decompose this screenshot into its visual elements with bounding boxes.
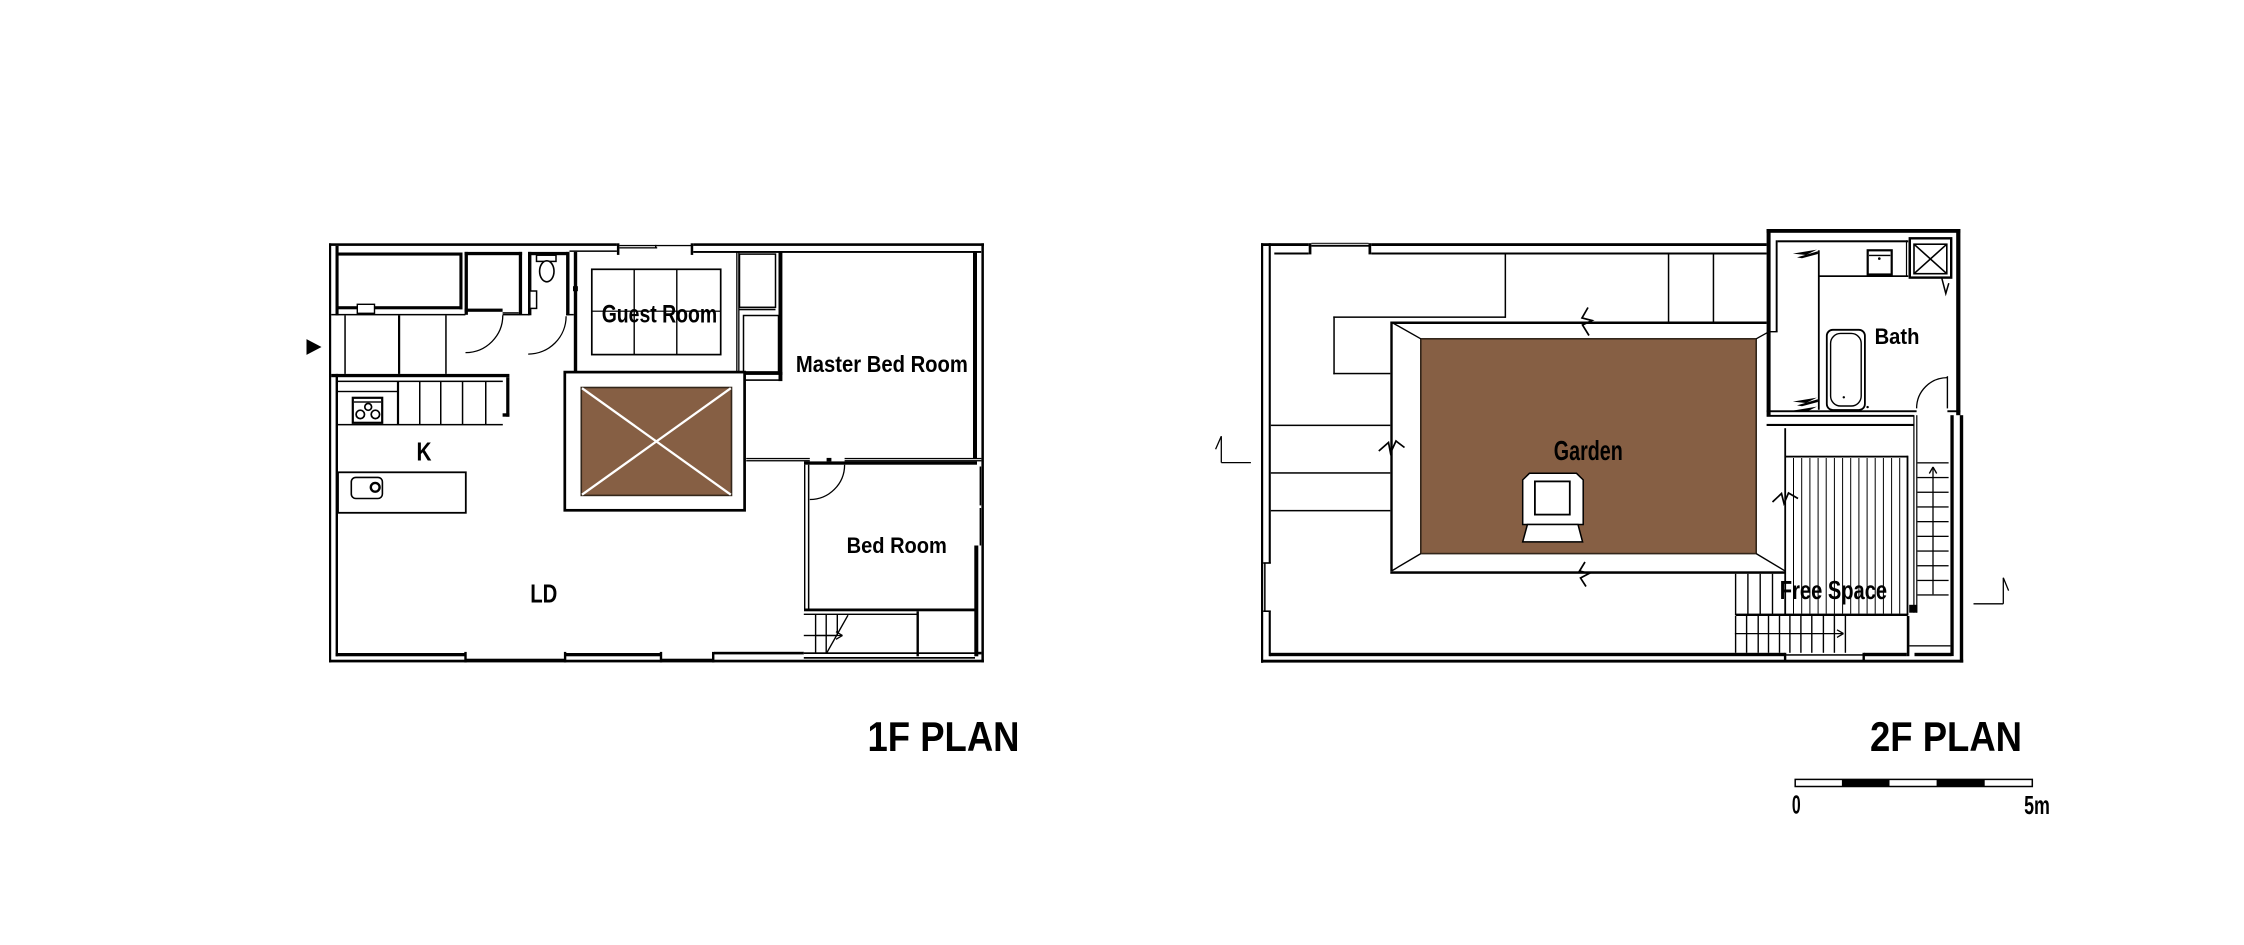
- svg-text:5m: 5m: [2024, 790, 2050, 820]
- svg-text:K: K: [417, 439, 432, 467]
- svg-text:LD: LD: [530, 579, 557, 609]
- svg-text:1F PLAN: 1F PLAN: [868, 713, 1020, 760]
- svg-text:Guest Room: Guest Room: [602, 300, 718, 328]
- svg-text:0: 0: [1792, 789, 1801, 819]
- svg-text:Garden: Garden: [1554, 435, 1623, 466]
- svg-text:Bath: Bath: [1875, 324, 1920, 349]
- svg-text:Master Bed Room: Master Bed Room: [796, 351, 968, 377]
- svg-text:2F PLAN: 2F PLAN: [1870, 713, 2022, 760]
- svg-text:Bed Room: Bed Room: [847, 533, 947, 558]
- svg-text:Free Space: Free Space: [1780, 575, 1887, 605]
